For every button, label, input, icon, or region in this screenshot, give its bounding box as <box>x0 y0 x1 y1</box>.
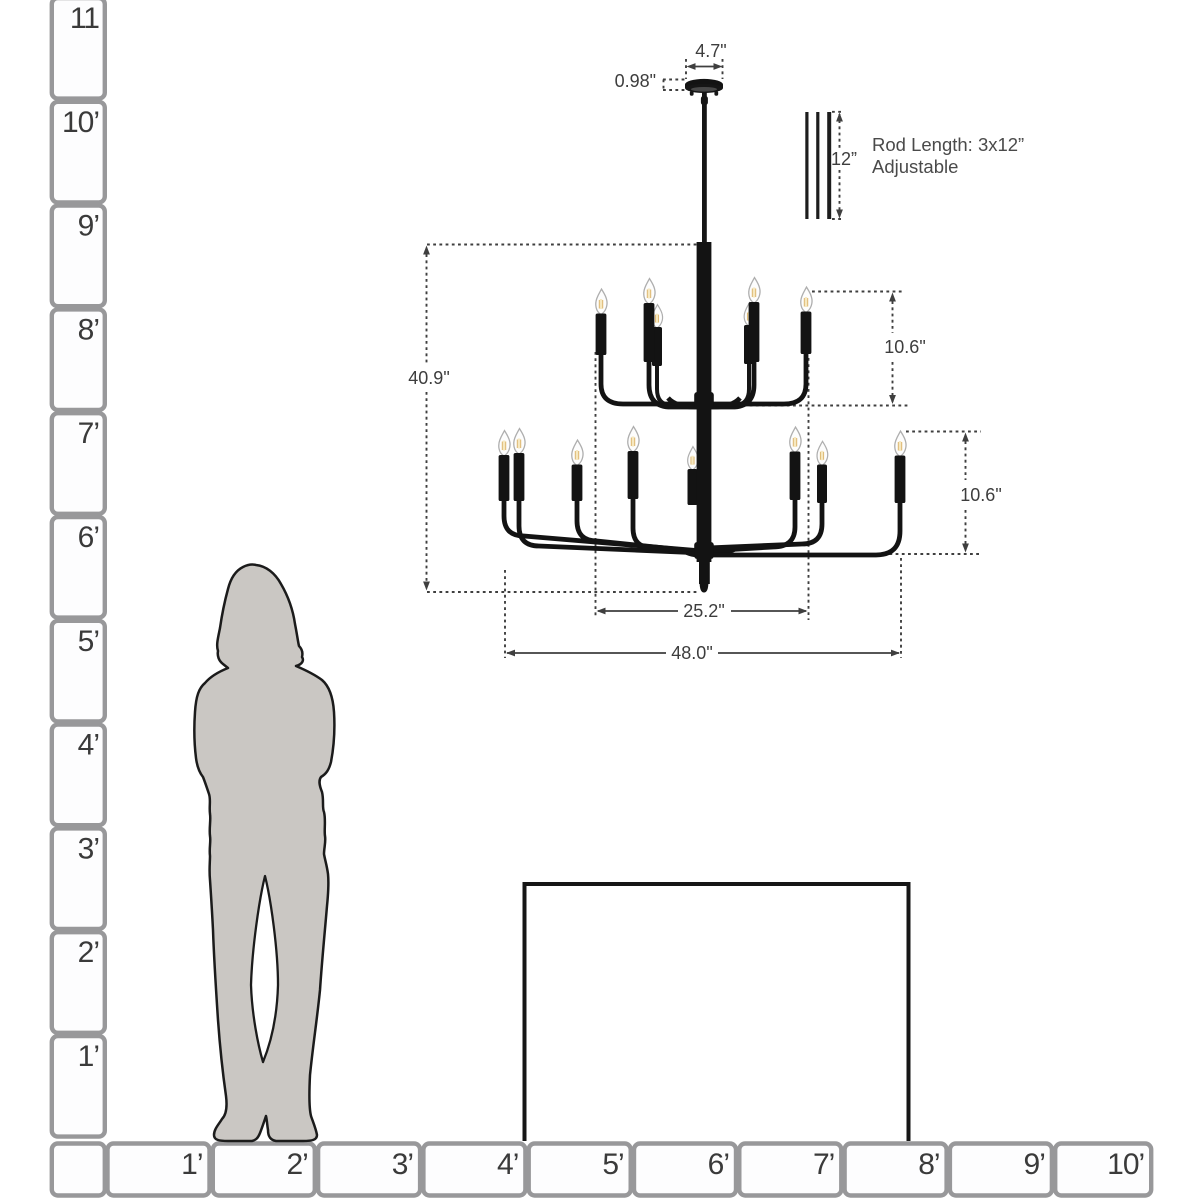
svg-text:10’: 10’ <box>62 106 99 139</box>
svg-text:6’: 6’ <box>78 521 99 554</box>
svg-text:4’: 4’ <box>497 1148 518 1181</box>
svg-text:7’: 7’ <box>813 1148 834 1181</box>
svg-text:48.0": 48.0" <box>671 643 712 663</box>
svg-text:5’: 5’ <box>78 625 99 658</box>
svg-text:10.6": 10.6" <box>884 337 925 357</box>
svg-text:3’: 3’ <box>78 832 99 865</box>
svg-text:4’: 4’ <box>78 729 99 762</box>
svg-text:40.9": 40.9" <box>408 368 449 388</box>
svg-text:2’: 2’ <box>286 1148 307 1181</box>
svg-text:1’: 1’ <box>181 1148 202 1181</box>
svg-text:9’: 9’ <box>1024 1148 1045 1181</box>
svg-text:7’: 7’ <box>78 417 99 450</box>
svg-text:9’: 9’ <box>78 210 99 243</box>
svg-text:8’: 8’ <box>918 1148 939 1181</box>
svg-text:Adjustable: Adjustable <box>872 156 958 177</box>
svg-text:6’: 6’ <box>708 1148 729 1181</box>
svg-text:8’: 8’ <box>78 313 99 346</box>
svg-text:0.98": 0.98" <box>615 71 656 91</box>
svg-text:4.7": 4.7" <box>695 41 726 61</box>
svg-text:3’: 3’ <box>392 1148 413 1181</box>
svg-text:25.2": 25.2" <box>683 601 724 621</box>
svg-text:Rod Length: 3x12”: Rod Length: 3x12” <box>872 134 1024 155</box>
svg-text:10.6": 10.6" <box>960 485 1001 505</box>
svg-text:12”: 12” <box>831 149 857 169</box>
svg-text:10’: 10’ <box>1107 1148 1144 1181</box>
svg-text:11: 11 <box>70 2 99 35</box>
svg-text:1’: 1’ <box>78 1040 99 1073</box>
svg-text:5’: 5’ <box>602 1148 623 1181</box>
svg-text:2’: 2’ <box>78 936 99 969</box>
